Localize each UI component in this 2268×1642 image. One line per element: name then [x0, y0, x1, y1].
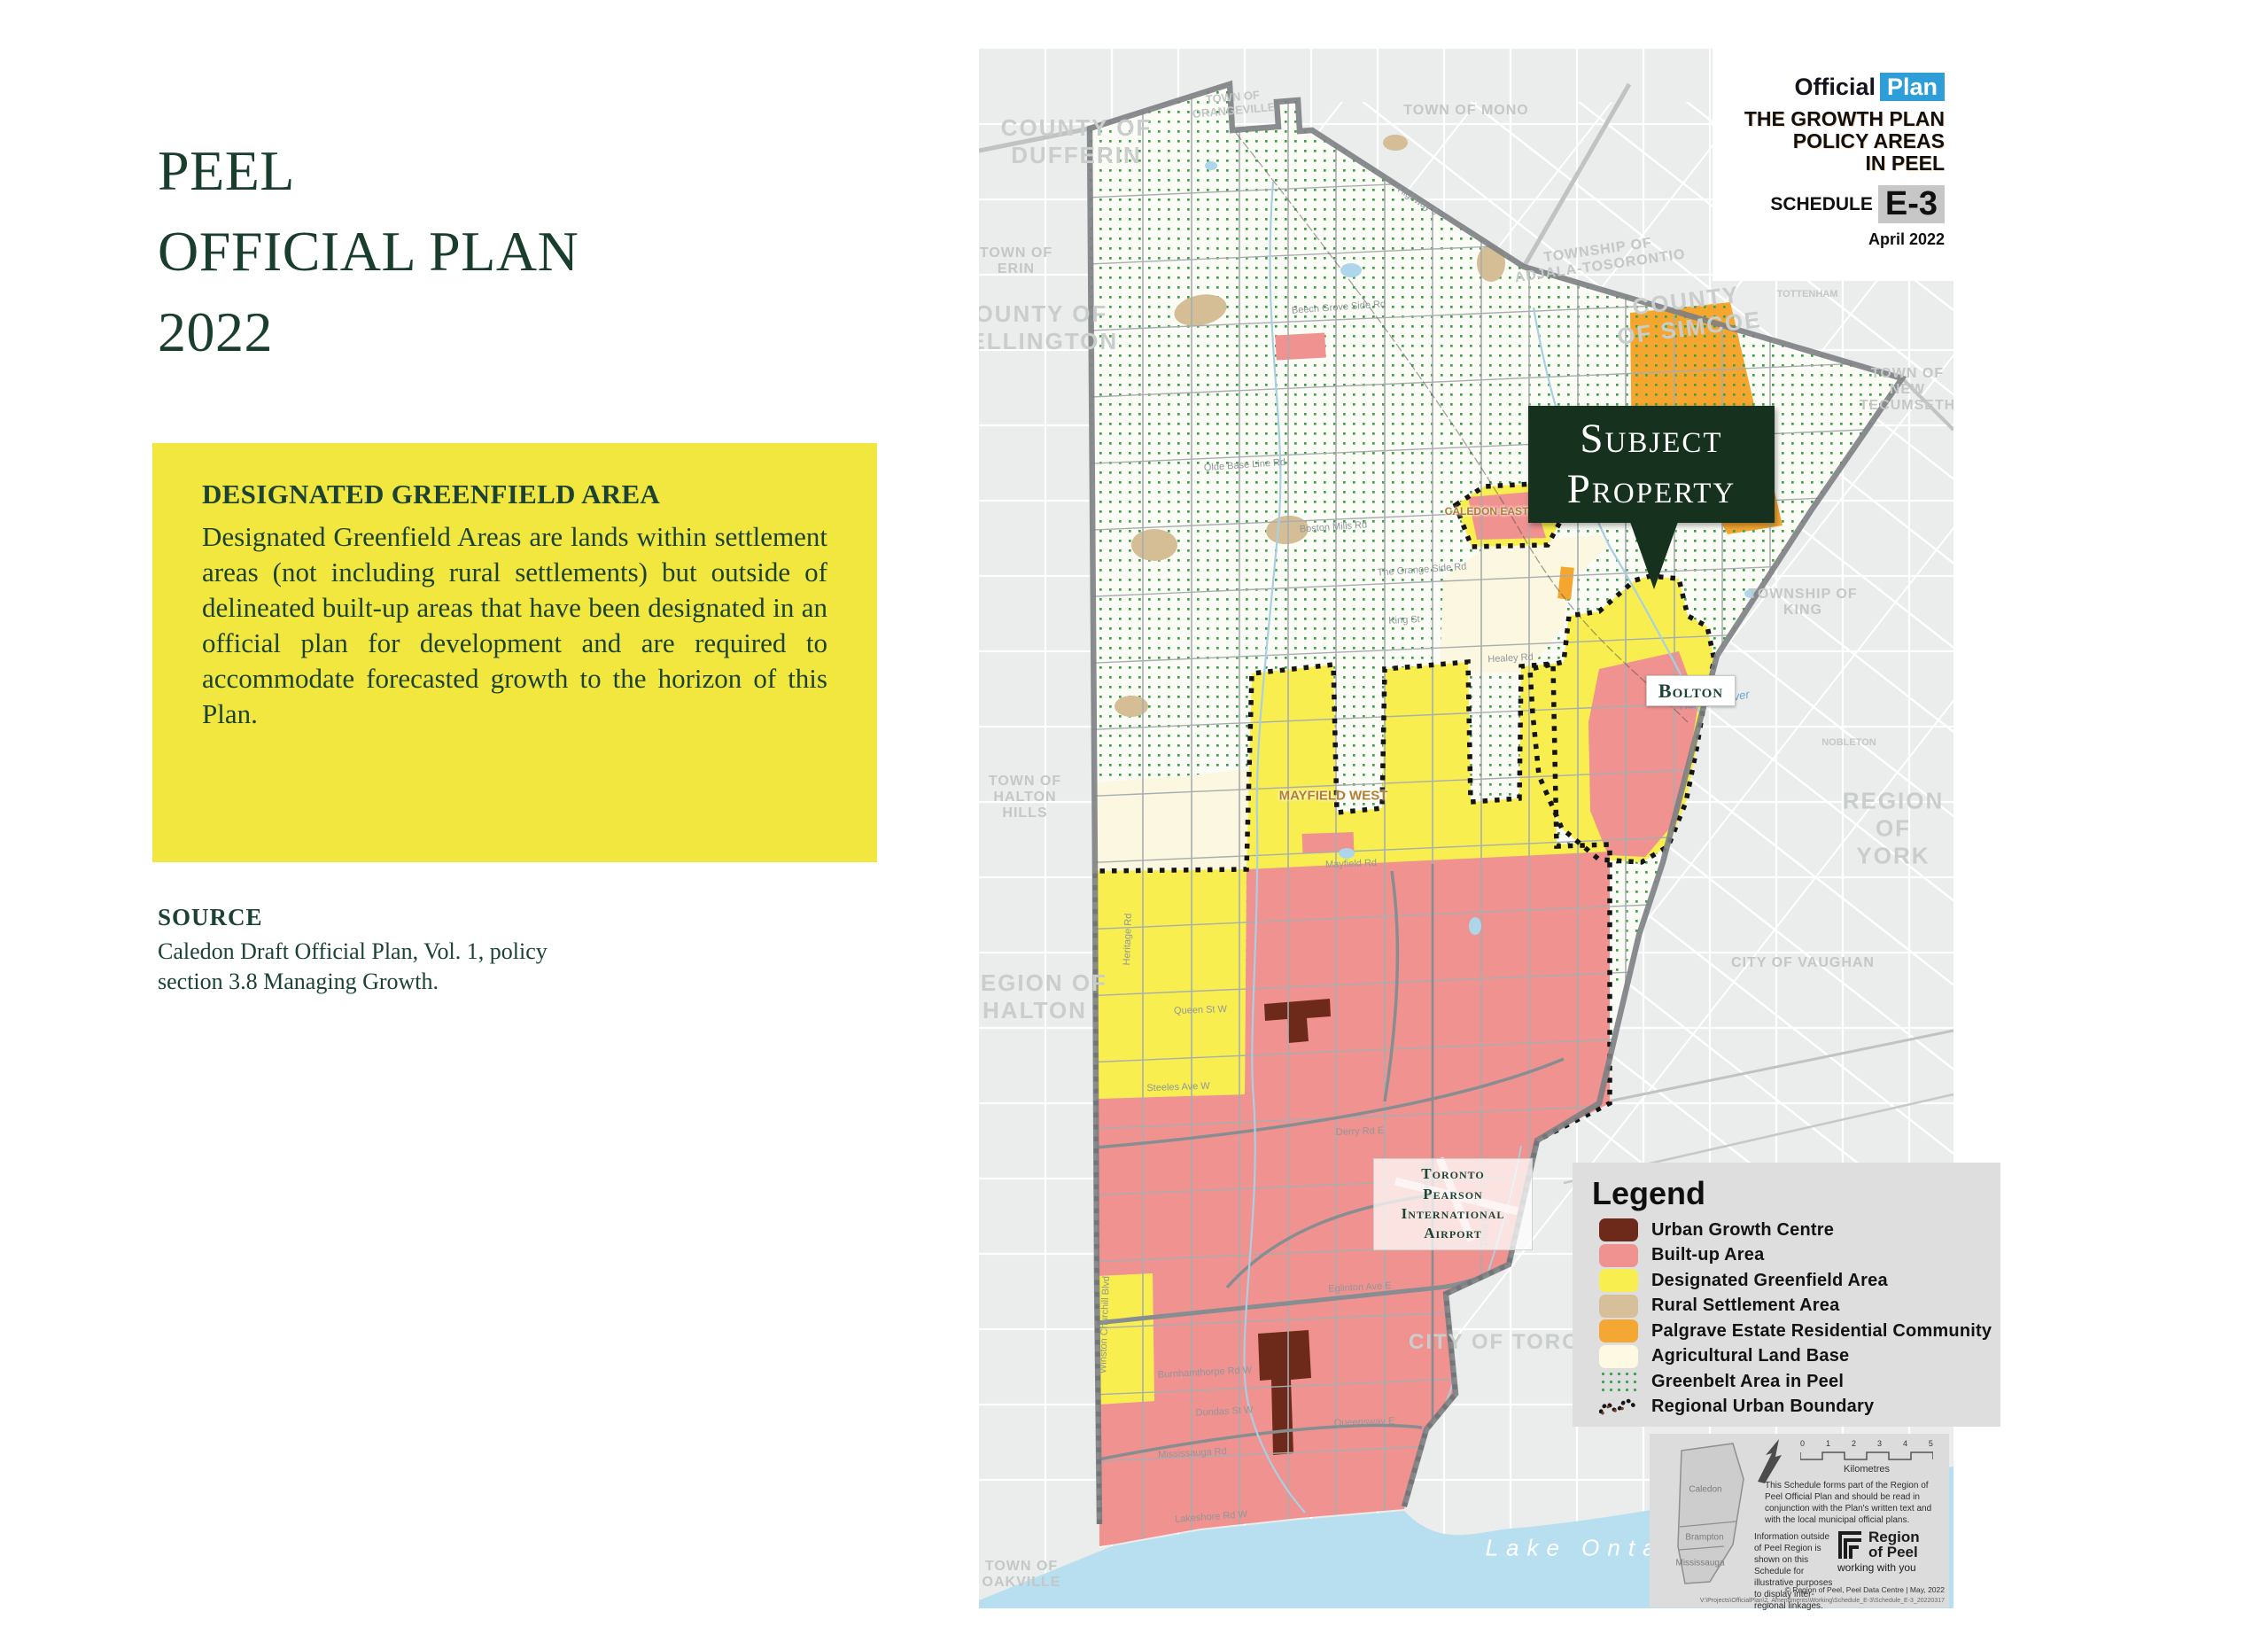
inset-label-mississauga: Mississauga [1675, 1559, 1724, 1568]
subject-property-text: Subject Property [1567, 414, 1736, 516]
road-label: Mayfield Rd [1325, 858, 1377, 870]
legend-item-urban-boundary: Regional Urban Boundary [1599, 1395, 2000, 1420]
inset-panel: Caledon Brampton Mississauga 012345 Kilo… [1650, 1434, 1949, 1607]
region-of-peel-logo-icon [1837, 1529, 1864, 1560]
schedule-code: E-3 [1878, 185, 1945, 223]
source-heading: SOURCE [158, 904, 654, 931]
legend: Legend Urban Growth Centre Built-up Area… [1573, 1163, 2000, 1427]
airport-label: Toronto Pearson International Airport [1402, 1164, 1505, 1244]
schedule-title-block: OfficialPlan THE GROWTH PLAN POLICY AREA… [1713, 49, 1953, 281]
legend-item-palgrave: Palgrave Estate Residential Community [1599, 1319, 2000, 1344]
legend-item-urban-growth-centre: Urban Growth Centre [1599, 1218, 2000, 1243]
peel-inset-map [1655, 1440, 1752, 1601]
label-new-tecumseth: TOWN OF NEW TECUMSETH [1860, 366, 1953, 414]
schedule-date: April 2022 [1713, 230, 1945, 249]
label-nobleton: NOBLETON [1821, 737, 1876, 748]
label-region-york: REGION OF YORK [1843, 788, 1945, 870]
label-tottenham: TOTTENHAM [1777, 289, 1838, 300]
swatch-agricultural [1599, 1345, 1638, 1368]
source-block: SOURCE Caledon Draft Official Plan, Vol.… [158, 904, 654, 997]
page: { "document": { "title": "PEEL\nOFFICIAL… [0, 0, 2268, 1642]
label-county-wellington: COUNTY OF WELLINGTON [979, 300, 1118, 355]
swatch-rural-settlement [1599, 1295, 1638, 1318]
label-city-vaughan: CITY OF VAUGHAN [1731, 955, 1875, 971]
scale-unit: Kilometres [1800, 1464, 1933, 1475]
greenfield-definition-box: DESIGNATED GREENFIELD AREA Designated Gr… [152, 443, 877, 862]
inset-copyright: © Region of Peel, Peel Data Centre | May… [1785, 1585, 1945, 1594]
official-plan-logo: OfficialPlan [1713, 74, 1945, 101]
bolton-label-box: Bolton [1646, 675, 1736, 706]
inset-label-brampton: Brampton [1685, 1533, 1723, 1543]
scale-bar [1800, 1451, 1933, 1461]
swatch-designated-greenfield [1599, 1269, 1638, 1292]
road-label: Derry Rd E [1336, 1125, 1385, 1138]
legend-item-agricultural: Agricultural Land Base [1599, 1344, 2000, 1370]
road-label: Queensway E [1334, 1416, 1395, 1428]
source-citation: Caledon Draft Official Plan, Vol. 1, pol… [158, 937, 654, 997]
swatch-urban-growth-centre [1599, 1218, 1638, 1241]
label-town-mono: TOWN OF MONO [1403, 103, 1528, 119]
label-town-erin: TOWN OF ERIN [980, 245, 1052, 277]
road-label: Queen St W [1174, 1004, 1227, 1016]
inset-file-path: V:\Projects\OfficialPlan\2_Amendments\Wo… [1700, 1598, 1945, 1604]
subject-property-pointer [1630, 522, 1678, 589]
logo-plan: Plan [1880, 73, 1945, 101]
label-town-oakville: TOWN OF OAKVILLE [983, 1559, 1061, 1591]
label-halton-hills: TOWN OF HALTON HILLS [989, 774, 1061, 821]
north-arrow-icon [1752, 1437, 1790, 1485]
swatch-greenbelt-dots [1599, 1370, 1638, 1393]
label-township-king: TOWNSHIP OF KING [1728, 587, 1878, 619]
page-title: PEEL OFFICIAL PLAN 2022 [158, 131, 579, 373]
legend-item-built-up-area: Built-up Area [1599, 1243, 2000, 1269]
swatch-built-up-area [1599, 1244, 1638, 1267]
swatch-urban-boundary-line [1599, 1396, 1638, 1419]
definition-body: Designated Greenfield Areas are lands wi… [202, 519, 827, 732]
inset-label-caledon: Caledon [1689, 1485, 1721, 1495]
region-of-peel-logo: Region of Peel working with you [1837, 1529, 1944, 1574]
road-label: Heritage Rd [1122, 913, 1134, 965]
legend-item-rural-settlement: Rural Settlement Area [1599, 1294, 2000, 1319]
road-label: King St [1388, 614, 1420, 626]
legend-item-greenbelt: Greenbelt Area in Peel [1599, 1369, 2000, 1395]
schedule-word: SCHEDULE [1770, 194, 1873, 215]
label-caledon-east: CALEDON EAST [1445, 505, 1529, 518]
swatch-palgrave [1599, 1319, 1638, 1342]
label-region-halton: REGION OF HALTON [979, 969, 1107, 1024]
road-label: Steeles Ave W [1146, 1081, 1210, 1093]
subject-property-callout: Subject Property [1528, 406, 1775, 523]
scale-bar-numbers: 012345 [1800, 1439, 1933, 1448]
bolton-label: Bolton [1658, 680, 1723, 703]
legend-title: Legend [1592, 1175, 2000, 1212]
schedule-title: THE GROWTH PLAN POLICY AREAS IN PEEL [1713, 108, 1945, 175]
label-mayfield-west: MAYFIELD WEST [1279, 789, 1388, 804]
label-county-dufferin: COUNTY OF DUFFERIN [1001, 114, 1153, 169]
airport-label-box: Toronto Pearson International Airport [1373, 1158, 1533, 1250]
inset-note-1: This Schedule forms part of the Region o… [1765, 1480, 1944, 1526]
logo-official: Official [1794, 74, 1876, 100]
definition-heading: DESIGNATED GREENFIELD AREA [202, 479, 827, 510]
legend-item-designated-greenfield: Designated Greenfield Area [1599, 1268, 2000, 1294]
